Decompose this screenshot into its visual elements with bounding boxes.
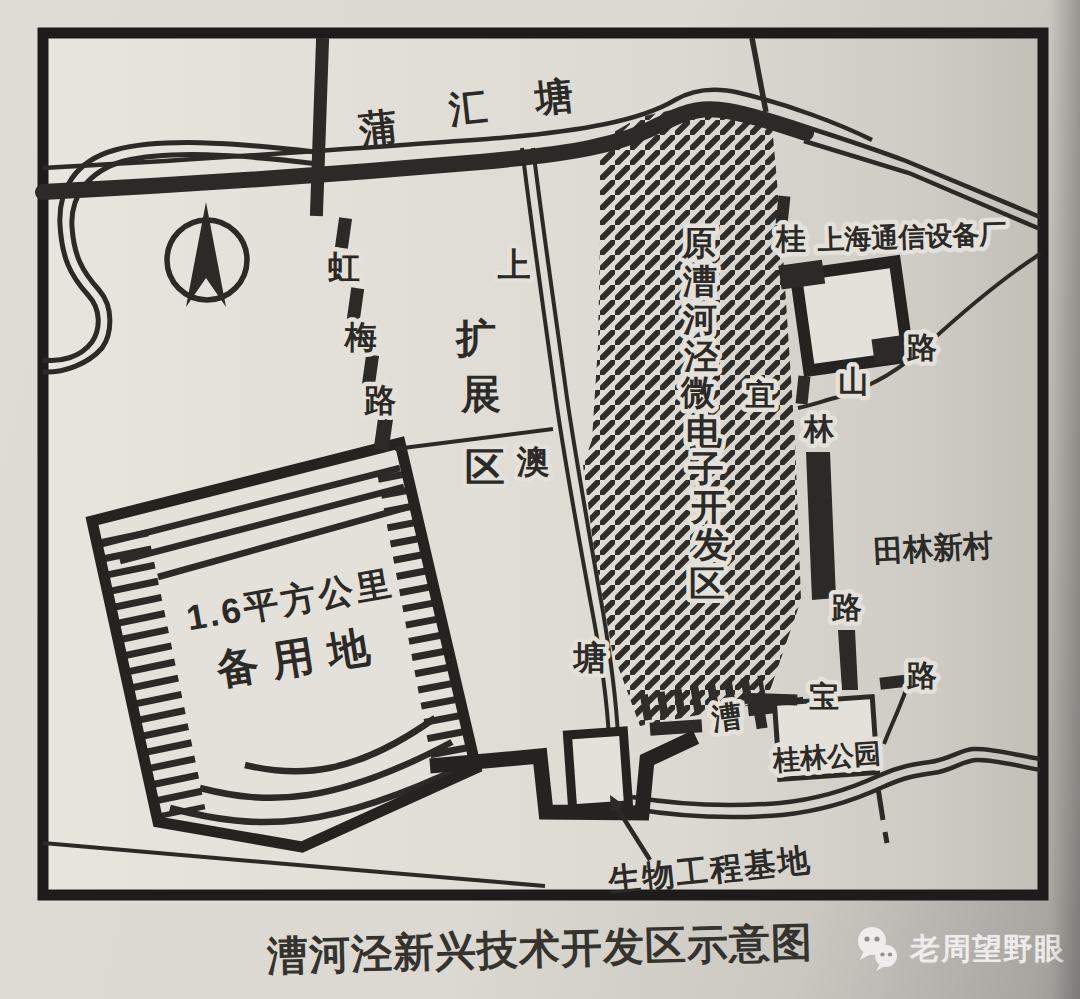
svg-text:塘: 塘 — [572, 639, 607, 676]
svg-text:蒲: 蒲 — [356, 105, 399, 151]
svg-text:路: 路 — [906, 659, 937, 692]
svg-text:虹: 虹 — [327, 249, 360, 285]
svg-text:塘: 塘 — [531, 74, 575, 120]
page-edge-shadow — [1050, 0, 1080, 999]
wechat-bubbles-icon — [852, 924, 902, 974]
watermark: 老周望野眼 — [852, 920, 1067, 978]
svg-text:漕: 漕 — [682, 262, 717, 300]
svg-text:子: 子 — [688, 448, 724, 489]
svg-text:发: 发 — [692, 524, 729, 565]
svg-text:开: 开 — [690, 486, 727, 527]
schematic-map: 蒲 汇 塘 上 澳 塘 虹 梅 路 扩 展 区 原 漕 河 泾 微 电 子 开 … — [0, 0, 1080, 999]
watermark-text: 老周望野眼 — [910, 929, 1065, 970]
svg-text:上: 上 — [498, 246, 531, 283]
svg-text:路: 路 — [364, 382, 396, 418]
svg-text:展: 展 — [460, 372, 501, 416]
svg-text:宝: 宝 — [809, 680, 839, 713]
svg-text:林: 林 — [802, 412, 835, 445]
label-tianlin: 田林新村 — [872, 528, 994, 567]
svg-text:原: 原 — [681, 224, 716, 262]
svg-text:电: 电 — [686, 411, 722, 452]
scanned-page: 蒲 汇 塘 上 澳 塘 虹 梅 路 扩 展 区 原 漕 河 泾 微 电 子 开 … — [0, 0, 1080, 999]
svg-text:汇: 汇 — [446, 85, 489, 131]
svg-text:桂: 桂 — [775, 222, 806, 255]
svg-text:微: 微 — [680, 373, 716, 411]
svg-text:区: 区 — [465, 445, 505, 489]
svg-text:区: 区 — [689, 563, 725, 604]
svg-text:漕: 漕 — [709, 699, 744, 736]
svg-text:梅: 梅 — [343, 319, 377, 355]
svg-text:山: 山 — [838, 365, 868, 398]
svg-text:泾: 泾 — [683, 337, 718, 375]
svg-text:扩: 扩 — [454, 316, 496, 360]
svg-text:澳: 澳 — [516, 443, 550, 480]
svg-text:宜: 宜 — [745, 378, 775, 411]
svg-text:河: 河 — [682, 300, 717, 338]
svg-text:路: 路 — [831, 591, 862, 624]
svg-text:路: 路 — [906, 331, 937, 364]
